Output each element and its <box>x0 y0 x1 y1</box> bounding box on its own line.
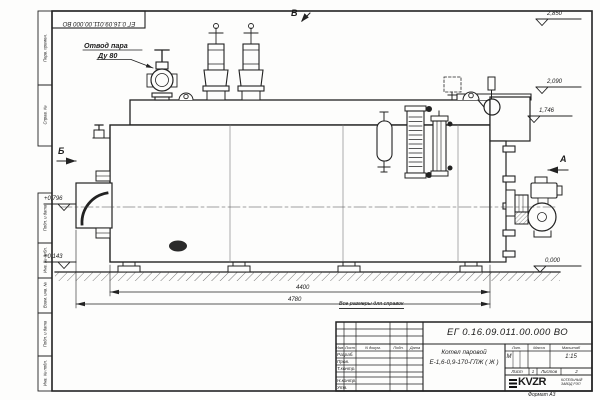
front-tap-valve <box>93 125 110 138</box>
logo-bars-icon <box>509 378 517 388</box>
tb-sheets-value: 2 <box>561 370 592 374</box>
burner <box>76 171 112 238</box>
drain-fitting <box>169 241 187 252</box>
tb-sheet-label: Лист <box>505 370 529 374</box>
elevation-0143: +0,143 <box>44 254 63 260</box>
strip-podp-data-1: Подп. и дата <box>43 205 48 231</box>
strip-sprav-no: Справ. № <box>43 105 48 124</box>
product-name-line1: Котел паровой <box>423 350 505 356</box>
steam-outlet-leader <box>83 50 153 68</box>
tb-mass-header: Масса <box>528 346 550 350</box>
tb-lit-value: М <box>505 354 513 360</box>
view-arrow-a <box>548 167 568 174</box>
tb-scale-header: Масштаб <box>550 346 592 350</box>
safety-valve-1 <box>203 24 229 101</box>
elevation-2090: 2,090 <box>547 79 562 85</box>
tb-col-ndoc: N докум. <box>356 346 390 350</box>
tb-col-list: Лист <box>344 346 356 350</box>
tb-scale-value: 1:15 <box>550 354 592 360</box>
elevation-2850: 2,850 <box>547 11 562 17</box>
format-label: Формат А3 <box>528 393 555 398</box>
strip-inv-podl: Инв. № подл. <box>43 360 48 386</box>
elevation-1746: 1,746 <box>539 108 554 114</box>
dim-4400: 4400 <box>296 285 309 291</box>
tb-row-tkontr: Т.контр. <box>337 367 356 372</box>
tb-row-prov: Пров. <box>337 360 349 365</box>
strip-perv-primen: Перв. примен. <box>43 34 48 62</box>
strip-podp-data-2: Подп. и дата <box>43 321 48 347</box>
view-label-a: А <box>560 155 567 164</box>
reference-note: Все размеры для справок <box>339 302 404 309</box>
tb-row-nkontr: Н.контр. <box>337 379 356 384</box>
steam-outlet-label-line2: Ду 80 <box>98 52 117 59</box>
tb-lit-header: Лит. <box>505 346 528 350</box>
safety-valve-2 <box>238 24 264 101</box>
tb-sheets-label: Листов <box>537 370 561 374</box>
dim-4780: 4780 <box>288 297 301 303</box>
tb-col-podp: Подп. <box>390 346 407 350</box>
view-arrow-b-left <box>57 158 76 165</box>
ground-hatch <box>55 272 560 281</box>
company-logo: KVZR <box>509 377 546 388</box>
elevation-0000: 0,000 <box>545 258 560 264</box>
view-label-b: Б <box>58 147 64 156</box>
strip-vzam-inv: Взам. инв. № <box>43 282 48 308</box>
strip-inv-dubl: Инв. № дубл. <box>43 247 48 273</box>
elevation-0796: +0,796 <box>44 196 63 202</box>
view-label-v: В <box>291 9 298 18</box>
steam-outlet-valve <box>147 50 177 100</box>
tb-row-razrab: Разраб. <box>337 353 354 358</box>
view-arrow-v-top <box>301 13 310 22</box>
product-name-line2: Е-1,6-0,9-170-ГЛЖ ( Ж ) <box>423 360 505 366</box>
tb-row-utv: Утв. <box>337 386 347 391</box>
tb-sheet-value: 1 <box>529 370 537 374</box>
title-block-doc-number: ЕГ 0.16.09.011.00.000 ВО <box>423 322 592 344</box>
company-name: КОТЕЛЬНЫЙ ЗАВОД РЭП <box>561 378 582 387</box>
tb-col-data: Дата <box>407 346 423 350</box>
tb-col-izm: Изм. <box>336 346 344 350</box>
steam-outlet-label-line1: Отвод пара <box>84 42 128 49</box>
drawing-sheet: ЕГ 0.16.09.011.00.000 ВО Перв. примен. С… <box>0 0 600 400</box>
logo-text: KVZR <box>518 377 546 388</box>
doc-number-stamp: ЕГ 0.16.09.011.00.000 ВО <box>55 13 143 26</box>
support-feet <box>118 262 482 272</box>
company-name-line2: ЗАВОД РЭП <box>561 382 582 386</box>
